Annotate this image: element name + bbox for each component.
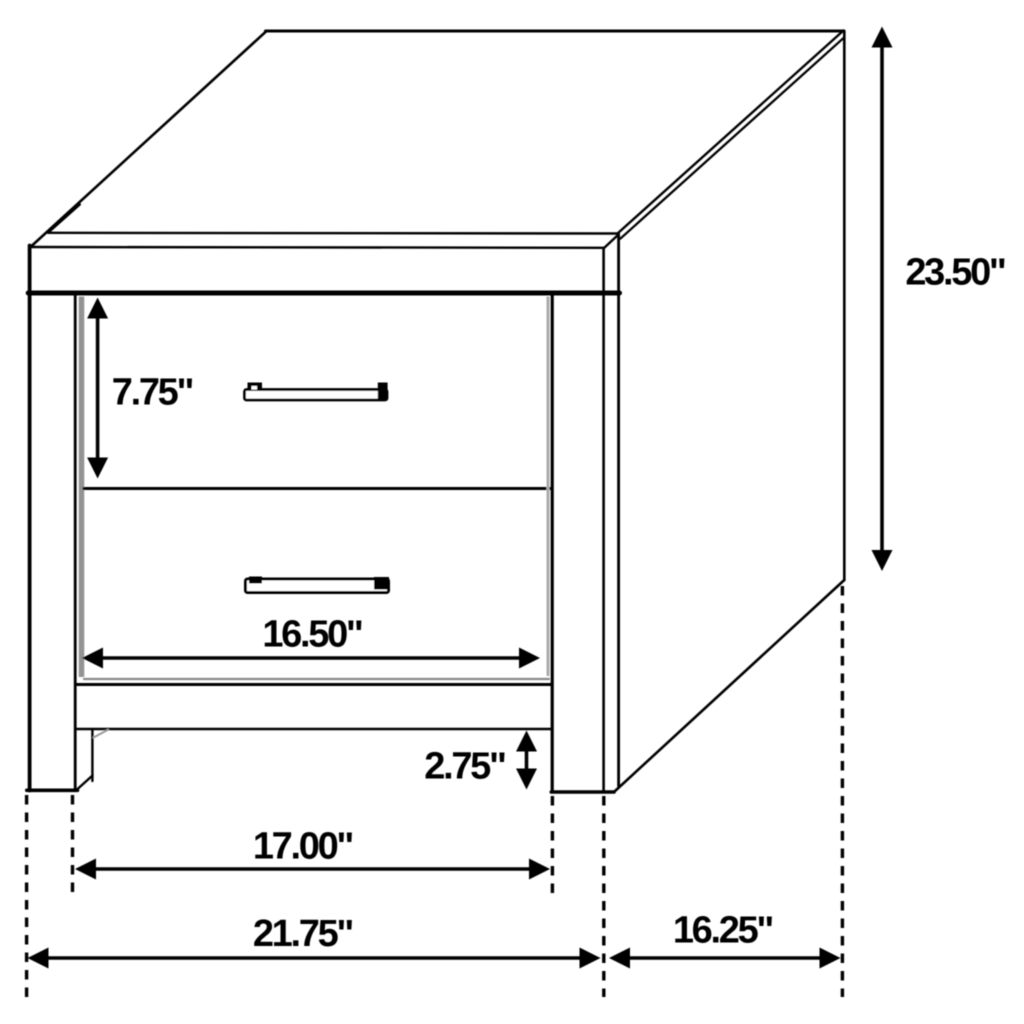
svg-text:23.50": 23.50" [905,252,1005,294]
svg-text:17.00": 17.00" [253,826,353,868]
svg-text:16.50": 16.50" [262,614,362,656]
svg-text:21.75": 21.75" [253,913,353,955]
svg-text:2.75": 2.75" [424,746,505,788]
svg-text:7.75": 7.75" [112,372,193,414]
svg-text:16.25": 16.25" [673,910,773,952]
